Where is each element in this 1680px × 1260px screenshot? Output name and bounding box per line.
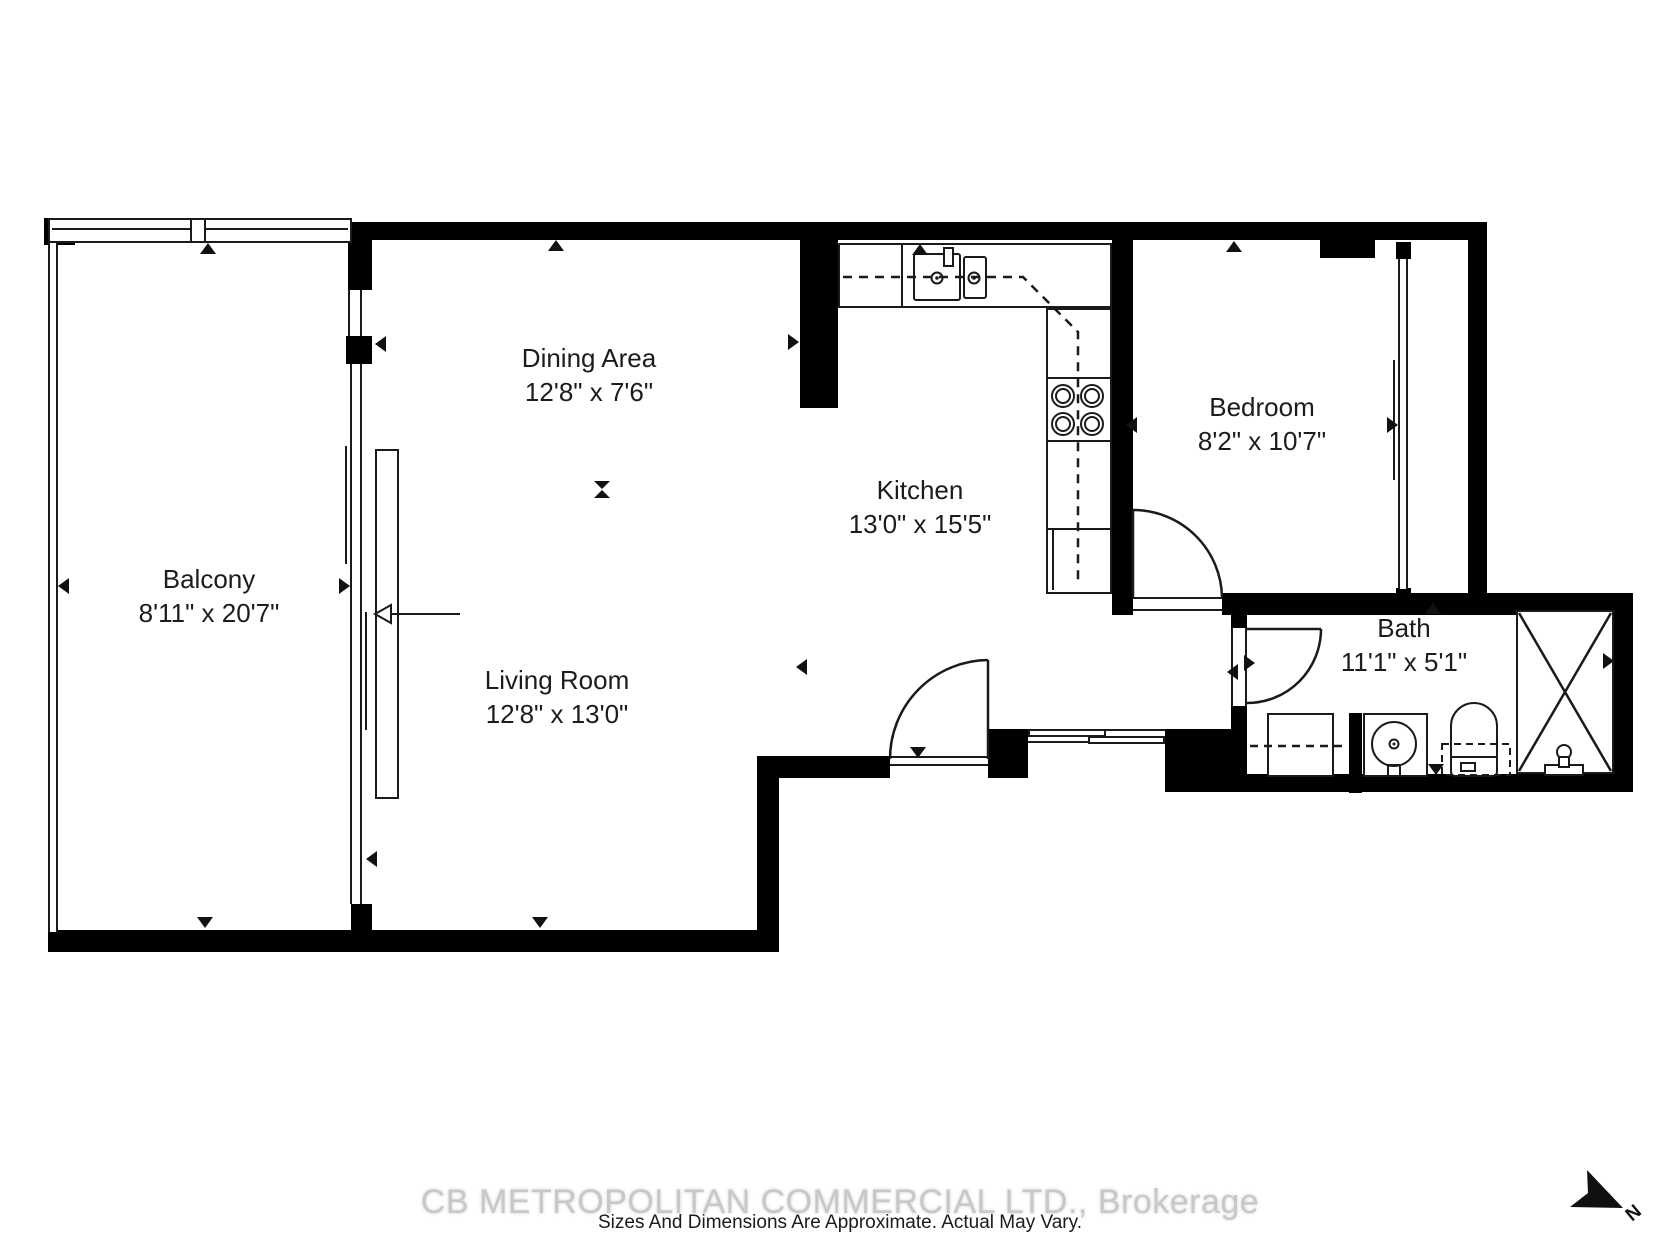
direction-marker-icon [548, 240, 564, 251]
wall-corridor-right [1165, 729, 1245, 792]
direction-marker-icon [339, 578, 350, 594]
room-dims: 8'2" x 10'7" [1198, 424, 1326, 458]
disclaimer-text: Sizes And Dimensions Are Approximate. Ac… [0, 1212, 1680, 1234]
stove [1046, 377, 1112, 442]
direction-marker-icon [1387, 417, 1398, 433]
direction-marker-icon [1603, 653, 1614, 669]
wall-bath-left-upper [1231, 593, 1247, 628]
kitchen-sink-small [963, 256, 987, 299]
direction-marker-icon [910, 747, 926, 758]
glass-wall-slider-jog [345, 446, 352, 564]
glass-wall-slider-jog [360, 612, 367, 730]
direction-marker-icon [912, 244, 928, 255]
bedroom-door [1133, 510, 1222, 597]
room-label-kitchen: Kitchen 13'0" x 15'5" [849, 473, 992, 541]
room-dims: 12'8" x 7'6" [522, 375, 656, 409]
direction-marker-icon [1126, 417, 1137, 433]
wall-bath-fixture-stub [1349, 713, 1362, 793]
direction-marker-icon [594, 490, 610, 498]
bath-door [1247, 629, 1321, 703]
direction-marker-icon [1428, 764, 1444, 775]
kitchen-counter-divider [901, 245, 903, 306]
entry-door [890, 660, 988, 759]
room-dims: 8'11" x 20'7" [139, 596, 280, 630]
wall-bottom-left [48, 930, 779, 952]
direction-marker-icon [796, 659, 807, 675]
direction-marker-icon [366, 851, 377, 867]
kitchen-counter-right [1046, 308, 1112, 594]
entry-threshold [890, 756, 988, 766]
slider-open-panel [375, 449, 399, 799]
shower [1516, 610, 1614, 774]
direction-marker-icon [197, 917, 213, 928]
room-dims: 12'8" x 13'0" [485, 697, 630, 731]
direction-marker-icon [1244, 655, 1255, 671]
wall-bedroom-bump [1320, 240, 1375, 258]
room-name: Bedroom [1198, 390, 1326, 424]
floor-plan: N Balcony 8'11" x 20'7" Dining Area 12'8… [0, 0, 1680, 1260]
room-label-dining: Dining Area 12'8" x 7'6" [522, 341, 656, 409]
room-name: Bath [1341, 611, 1467, 645]
wall-entry-right [988, 729, 1028, 778]
wall-glass-stub-bottom [351, 904, 372, 932]
room-dims: 13'0" x 15'5" [849, 507, 992, 541]
balcony-window-divider-line [190, 220, 192, 241]
room-name: Balcony [139, 562, 280, 596]
balcony-rail-left [48, 243, 58, 932]
direction-marker-icon [532, 917, 548, 928]
kitchen-cabinet-line [1048, 528, 1110, 530]
wall-bedroom-window-stub-top [1396, 242, 1411, 259]
kitchen-faucet [943, 247, 954, 267]
direction-marker-icon [788, 334, 799, 350]
balcony-window-divider-line [204, 220, 206, 241]
wall-glass-block [346, 336, 372, 364]
room-label-bath: Bath 11'1" x 5'1" [1341, 611, 1467, 679]
room-label-balcony: Balcony 8'11" x 20'7" [139, 562, 280, 630]
room-name: Kitchen [849, 473, 992, 507]
room-label-bedroom: Bedroom 8'2" x 10'7" [1198, 390, 1326, 458]
wall-step-connector [757, 756, 779, 952]
closet-sliding-panel [1088, 736, 1165, 744]
glass-wall-window [348, 290, 362, 336]
room-label-living: Living Room 12'8" x 13'0" [485, 663, 630, 731]
toilet-handle [1460, 762, 1476, 772]
direction-marker-icon [1226, 241, 1242, 252]
toilet-tank-line [1452, 756, 1496, 758]
room-name: Dining Area [522, 341, 656, 375]
bedroom-doorway [1133, 597, 1222, 611]
vanity-faucet [1387, 764, 1401, 777]
wall-bath-right [1614, 593, 1633, 792]
direction-marker-icon [200, 243, 216, 254]
wall-top [320, 222, 1487, 240]
wall-glass-stub-top [348, 240, 372, 290]
kitchen-cabinet-inset [1052, 530, 1054, 590]
direction-marker-icon [1227, 664, 1238, 680]
direction-marker-icon [58, 578, 69, 594]
room-name: Living Room [485, 663, 630, 697]
wall-kitchen-stub [800, 240, 838, 408]
direction-marker-icon [375, 336, 386, 352]
direction-marker-icon [594, 481, 610, 489]
washer [1267, 713, 1334, 777]
room-dims: 11'1" x 5'1" [1341, 645, 1467, 679]
wall-bedroom-right [1468, 222, 1487, 615]
